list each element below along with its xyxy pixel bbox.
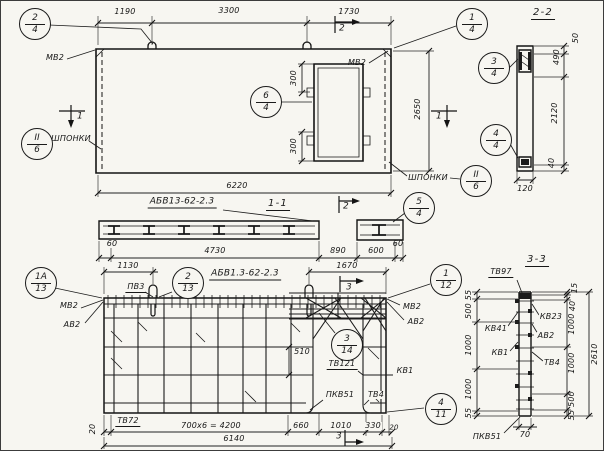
plan-mark-title: АБВ1.3-62-2.3 xyxy=(209,270,281,281)
section-3-3-title: 3-3 xyxy=(525,255,549,267)
label-kv1-33: КВ1 xyxy=(491,349,510,357)
callout-top: 5 xyxy=(409,197,428,209)
dim-500-right: 500 xyxy=(568,391,576,407)
label-mv2-top-right: МВ2 xyxy=(348,59,366,67)
dim-300-bottom: 300 xyxy=(290,138,298,154)
drawing-linework xyxy=(1,1,604,451)
callout-bottom: 13 xyxy=(182,284,193,295)
callout-top: II xyxy=(466,170,485,182)
dim-1000-left-2: 1000 xyxy=(465,378,473,399)
callout-bottom: 4 xyxy=(416,209,422,220)
dim-20-right: 20 xyxy=(389,425,398,432)
callout-top: II xyxy=(27,133,46,145)
callout-4-4: 44 xyxy=(480,124,512,156)
callout-bottom: 12 xyxy=(440,281,451,292)
dim-700x6: 700х6 = 4200 xyxy=(180,422,242,430)
dim-55-right: 55 xyxy=(568,410,576,421)
callout-top: 4 xyxy=(431,398,450,410)
label-tv121: ТВ121 xyxy=(327,360,358,370)
dim-500-left: 500 xyxy=(465,303,473,319)
label-tv72: ТВ72 xyxy=(115,417,140,427)
dim-50: 50 xyxy=(572,33,580,44)
dim-40: 40 xyxy=(548,158,556,169)
label-tv4-33: ТВ4 xyxy=(543,359,561,367)
dim-3300: 3300 xyxy=(218,7,239,15)
dim-20-left: 20 xyxy=(89,424,97,435)
cut-marker-3-top: 3 xyxy=(346,284,352,293)
callout-2-4: 24 xyxy=(19,8,51,40)
dim-1010: 1010 xyxy=(329,422,352,430)
label-tv4-plan: ТВ4 xyxy=(367,391,385,399)
cut-marker-2-top: 2 xyxy=(339,25,345,34)
callout-1-4: 14 xyxy=(456,8,488,40)
callout-3-14: 314 xyxy=(331,329,363,361)
label-shponki-left: ШПОНКИ xyxy=(51,135,91,143)
callout-bottom: 6 xyxy=(473,182,479,193)
label-pv3: ПВ3 xyxy=(125,283,146,293)
dim-1000-left-1: 1000 xyxy=(465,334,473,355)
callout-4-11: 411 xyxy=(425,393,457,425)
dim-1670: 1670 xyxy=(336,262,357,270)
callout-top: 2 xyxy=(178,272,197,284)
panel-working-drawing: 1190 3300 1730 6220 2650 300 300 МВ2 МВ2… xyxy=(0,0,604,451)
dim-1190: 1190 xyxy=(114,8,135,16)
dim-1730: 1730 xyxy=(338,8,359,16)
callout-bottom: 4 xyxy=(32,25,38,36)
callout-bottom: 6 xyxy=(34,145,40,156)
label-kv1-plan: КВ1 xyxy=(397,367,414,375)
section-1-1-title: 1-1 xyxy=(266,199,290,211)
callout-top: 6 xyxy=(256,91,275,103)
callout-bottom: 11 xyxy=(435,410,446,421)
cut-marker-3-bottom: 3 xyxy=(336,433,342,442)
callout-bottom: 4 xyxy=(469,25,475,36)
dim-660: 660 xyxy=(292,422,310,430)
cut-marker-1-left: 1 xyxy=(77,113,83,122)
callout-6-4: 64 xyxy=(250,86,282,118)
callout-top: 1 xyxy=(436,269,455,281)
dim-330: 330 xyxy=(364,422,382,430)
dim-120: 120 xyxy=(517,185,533,193)
dim-1000-right-2: 1000 xyxy=(568,352,576,373)
callout-bottom: 14 xyxy=(341,346,352,357)
label-kv23: КВ23 xyxy=(539,313,563,321)
label-mv2-top-left: МВ2 xyxy=(46,54,64,62)
callout-top: 2 xyxy=(25,13,44,25)
callout-top: 3 xyxy=(337,334,356,346)
callout-2-13: 213 xyxy=(172,267,204,299)
callout-bottom: 13 xyxy=(35,284,46,295)
label-av2-plan-left: АВ2 xyxy=(64,321,81,329)
callout-1a-13: 1А13 xyxy=(25,267,57,299)
dim-2650: 2650 xyxy=(414,98,422,119)
dim-55-left-top: 55 xyxy=(465,290,473,301)
label-pkv51-plan: ПКВ51 xyxy=(325,391,355,399)
callout-top: 3 xyxy=(484,57,503,69)
cut-marker-2-section: 2 xyxy=(343,203,349,212)
callout-1-12: 112 xyxy=(430,264,462,296)
label-shponki-right: ШПОНКИ xyxy=(408,174,448,182)
dim-300-top: 300 xyxy=(290,70,298,86)
dim-1000-right-1: 1000 xyxy=(568,313,576,334)
dim-2610-overall: 2610 xyxy=(591,343,599,364)
callout-bottom: 4 xyxy=(263,103,269,114)
dim-6140: 6140 xyxy=(222,435,245,443)
callout-top: 1А xyxy=(31,272,50,284)
dim-40-right: 40 xyxy=(569,301,577,312)
dim-70: 70 xyxy=(520,431,531,439)
label-pkv51-33: ПКВ51 xyxy=(472,433,502,441)
callout-3-4: 34 xyxy=(478,52,510,84)
label-av2-plan-right: АВ2 xyxy=(408,318,425,326)
dim-2120: 2120 xyxy=(551,102,559,123)
callout-top: 1 xyxy=(462,13,481,25)
label-av2-33: АВ2 xyxy=(537,332,556,340)
dim-890: 890 xyxy=(329,247,347,255)
dim-600: 600 xyxy=(367,247,385,255)
callout-II-6-left: II6 xyxy=(21,128,53,160)
label-mv2-plan-right: МВ2 xyxy=(403,303,421,311)
dim-510: 510 xyxy=(293,348,311,356)
cut-marker-1-right: 1 xyxy=(436,113,442,122)
callout-top: 4 xyxy=(486,129,505,141)
dim-60-right: 60 xyxy=(393,240,404,248)
callout-bottom: 4 xyxy=(491,69,497,80)
dim-60-left: 60 xyxy=(107,240,118,248)
dim-490: 490 xyxy=(553,49,561,65)
callout-5-4: 54 xyxy=(403,192,435,224)
dim-55-left-bottom: 55 xyxy=(465,408,473,419)
callout-bottom: 4 xyxy=(493,141,499,152)
label-kv41: КВ41 xyxy=(484,325,508,333)
callout-II-6-right: II6 xyxy=(460,165,492,197)
label-tv97: ТВ97 xyxy=(488,268,513,278)
dim-1130: 1130 xyxy=(117,262,138,270)
dim-15-right: 15 xyxy=(571,283,579,294)
label-mv2-plan-left: МВ2 xyxy=(60,302,78,310)
section-2-2-title: 2-2 xyxy=(531,8,555,20)
dim-6220: 6220 xyxy=(226,182,247,190)
dim-4730: 4730 xyxy=(203,247,226,255)
label-mark-abv13: АБВ13-62-2.3 xyxy=(148,198,217,209)
